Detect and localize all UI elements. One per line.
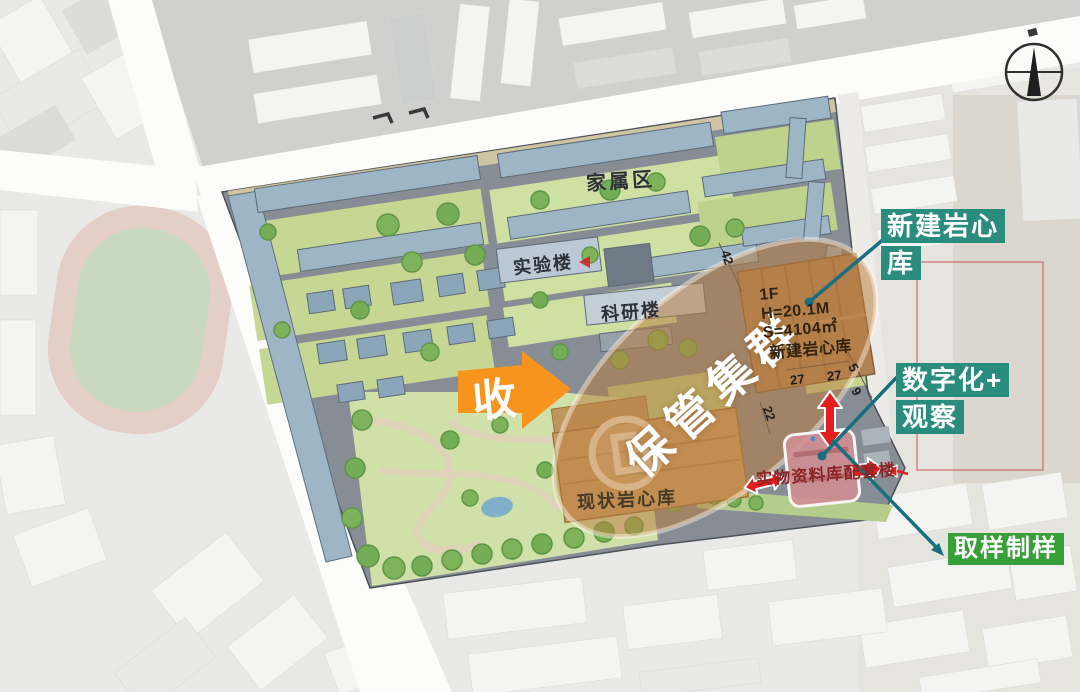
label-research-building: 科研楼 <box>600 295 662 326</box>
callout-new-repo: 新建岩心 库 <box>881 209 1005 283</box>
site-plan-map: 家属区 实验楼 科研楼 现状岩心库 实物资料库配套楼 1F H=20.1M S=… <box>0 0 1080 692</box>
label-family-area: 家属区 <box>585 163 656 197</box>
dimension-27b: 27 <box>826 367 842 383</box>
callout-digitize-line1: 数字化+ <box>896 363 1009 397</box>
callout-digitize: 数字化+ 观察 <box>896 363 1009 437</box>
connector-dot <box>818 452 827 461</box>
new-building-info: 1F H=20.1M S=4104㎡ 新建岩心库 <box>759 279 853 364</box>
map-graphics <box>0 0 1080 692</box>
callout-new-repo-line1: 新建岩心 <box>881 209 1005 243</box>
dimension-27a: 27 <box>789 371 805 387</box>
label-collect: 收 <box>469 362 518 430</box>
callout-new-repo-line2: 库 <box>881 246 921 280</box>
callout-sampling: 取样制样 <box>948 533 1064 568</box>
label-existing-repo: 现状岩心库 <box>576 483 677 514</box>
callout-digitize-line2: 观察 <box>896 400 964 434</box>
callout-sampling-label: 取样制样 <box>948 533 1064 565</box>
